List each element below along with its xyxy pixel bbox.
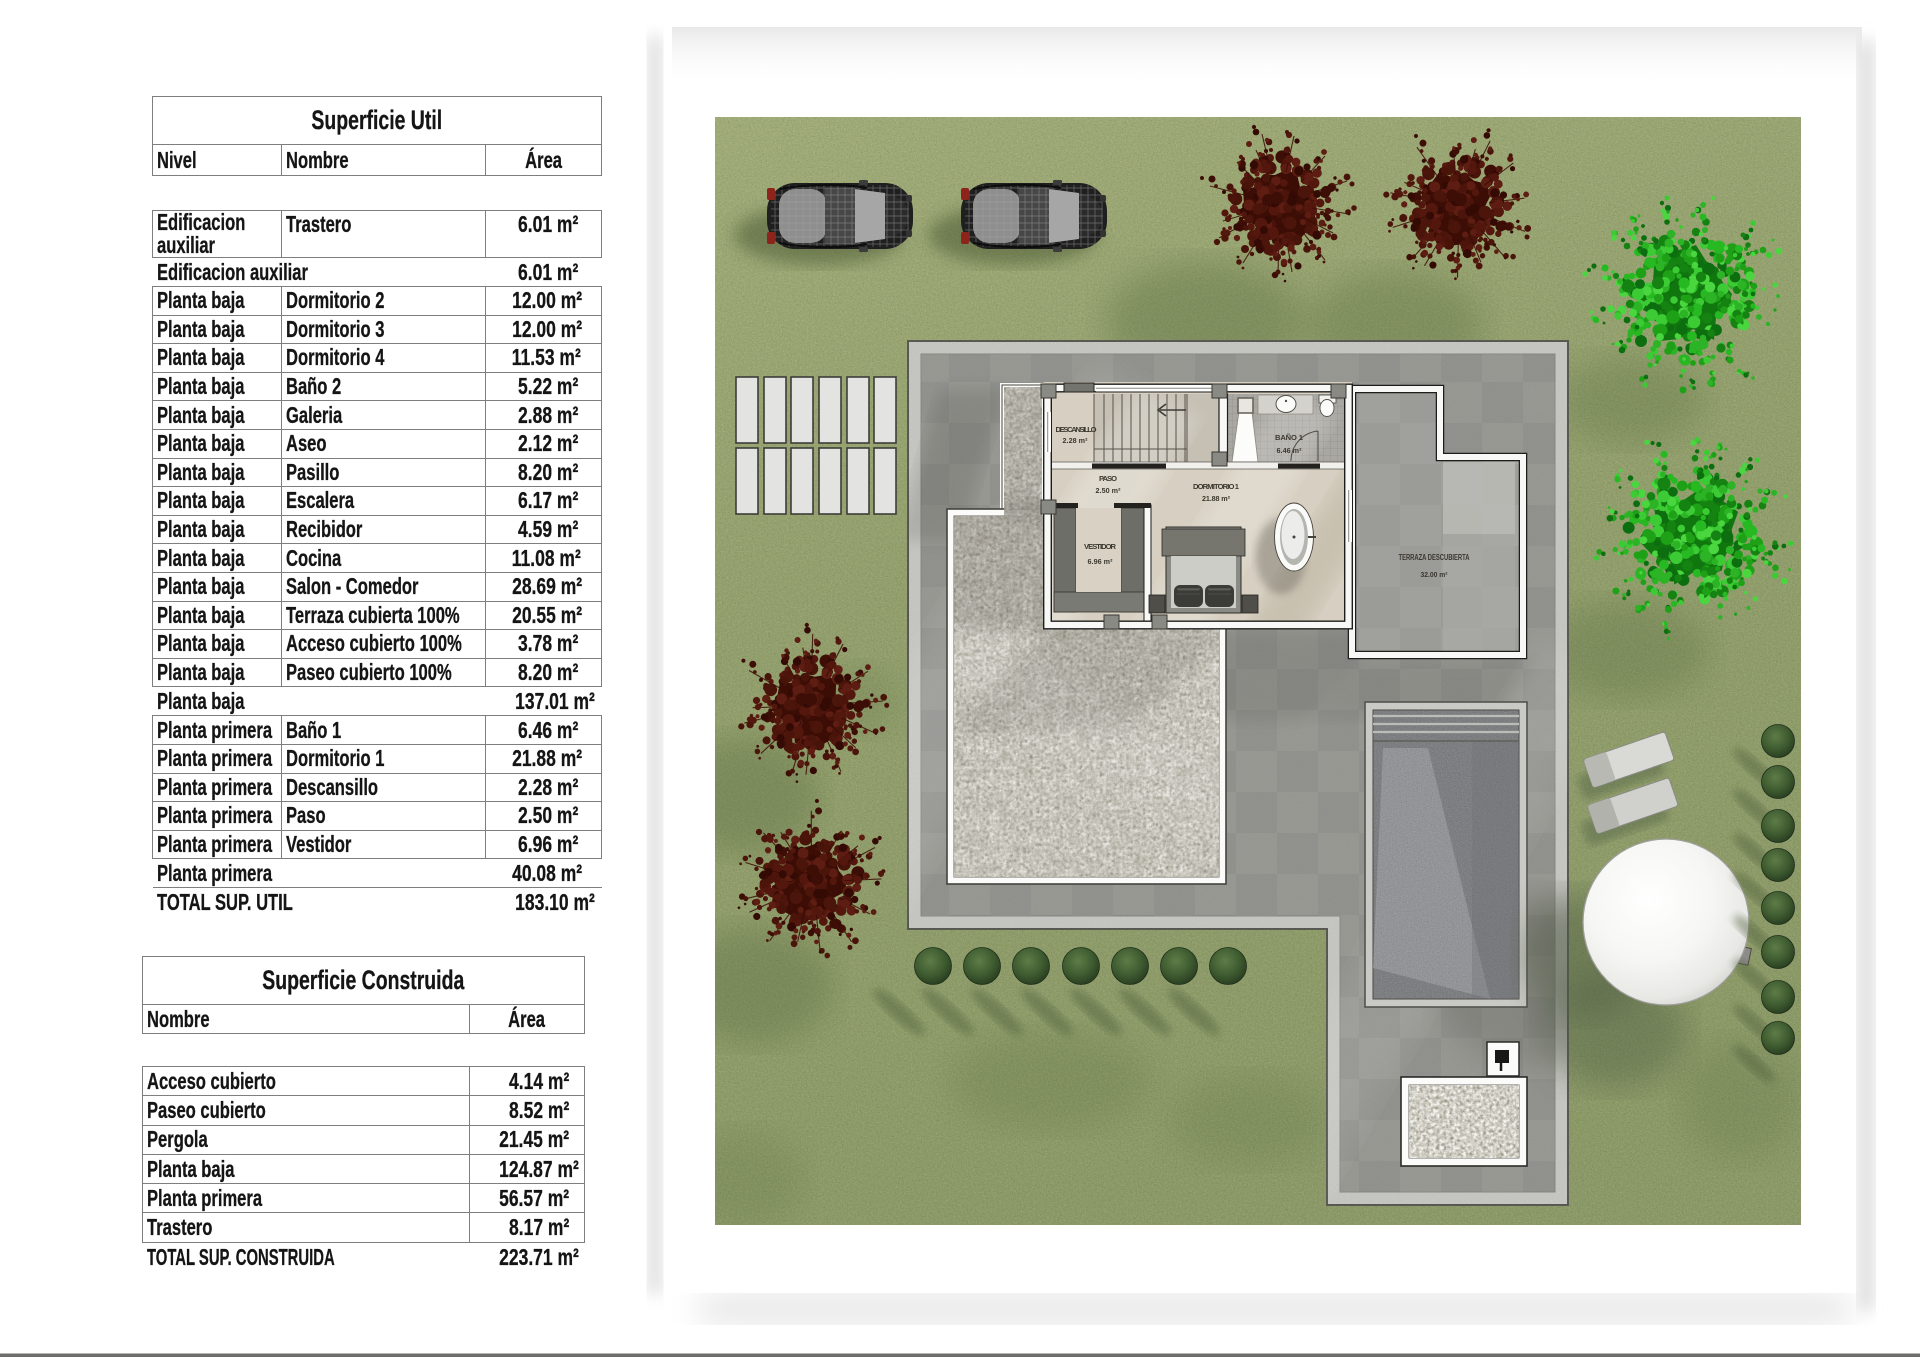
svg-text:21.88 m²: 21.88 m² — [1202, 494, 1231, 503]
svg-text:PASO: PASO — [1099, 474, 1117, 483]
svg-text:TERRAZA DESCUBIERTA: TERRAZA DESCUBIERTA — [1399, 553, 1470, 562]
svg-text:6.96 m²: 6.96 m² — [1088, 557, 1114, 566]
svg-text:DORMITORIO 1: DORMITORIO 1 — [1193, 482, 1240, 491]
svg-text:DESCANSILLO: DESCANSILLO — [1056, 425, 1097, 434]
svg-text:2.28 m²: 2.28 m² — [1063, 436, 1089, 445]
svg-text:6.46 m²: 6.46 m² — [1277, 446, 1303, 455]
svg-text:VESTIDOR: VESTIDOR — [1084, 542, 1117, 551]
svg-text:2.50 m²: 2.50 m² — [1096, 486, 1122, 495]
svg-text:BAÑO 1: BAÑO 1 — [1275, 433, 1304, 442]
svg-text:32.00 m²: 32.00 m² — [1421, 570, 1449, 579]
